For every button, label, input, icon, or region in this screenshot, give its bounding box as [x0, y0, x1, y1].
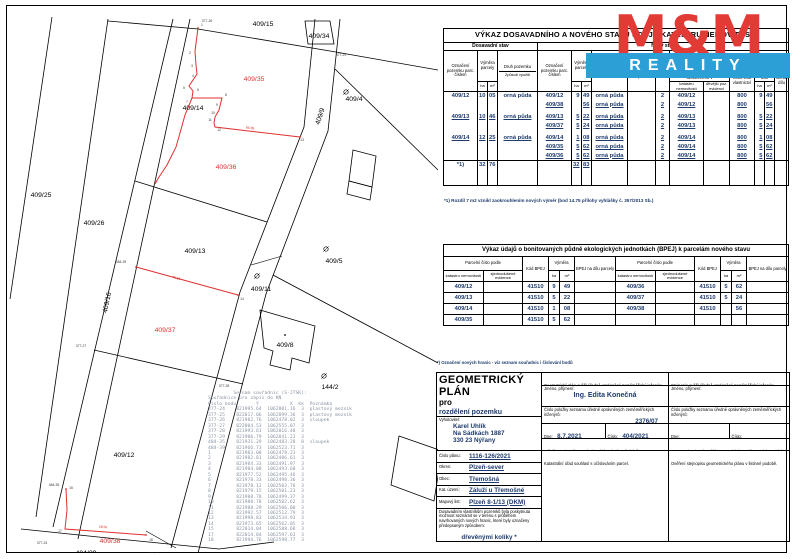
table1-footnote: *1) Rozdíl 7 m2 vznikl zaokrouhlením nov… — [444, 198, 653, 203]
parcel-label: 409/12 — [114, 452, 135, 459]
parcel-label: 409/38 — [100, 538, 121, 545]
parcel-label: 409/25 — [31, 192, 52, 199]
gp-map-sheet: Mapový list:Plzeň 8-1/13 (DKM) — [437, 497, 541, 509]
survey-point — [197, 27, 199, 29]
boundary-line — [335, 69, 438, 170]
point-label: 484-39 — [116, 260, 127, 264]
building-outline — [349, 150, 376, 187]
gp-copy-date-number: Dne: Číslo: — [669, 424, 789, 439]
gp-note: *) Označení nových hranic - viz seznam s… — [437, 360, 573, 365]
gp-district: Okres:Plzeň-sever — [437, 463, 541, 475]
point-label: 11 — [208, 118, 212, 122]
point-label: 8 — [225, 93, 227, 97]
gp-author-cell: Vyhotovitel: Karel Uhlík Na Sádkách 1887… — [437, 417, 541, 451]
parcel-label: 409/4 — [345, 96, 362, 103]
building-outline — [391, 436, 438, 501]
geometric-plan-document: { "map": { "parcel_labels": [ {"t":"409/… — [0, 0, 793, 559]
point-label: 14 — [240, 297, 244, 301]
boundary-line — [10, 17, 52, 299]
table-row: 409/1341510522409/3741510524 — [444, 293, 789, 304]
parcel-label: 409/14 — [183, 105, 204, 112]
gp-right-column: Stejnopis ověřil úředně oprávněný zeměmě… — [669, 373, 789, 541]
col-parcel-new: Označení pozemku parc. číslem — [538, 51, 572, 92]
point-label: 4 — [192, 74, 194, 78]
table1-body: 409/121005orná půda409/12949orná půda240… — [444, 92, 789, 186]
building-outline — [347, 181, 372, 200]
gp-notice-cell: Dosavadním vlastníkům pozemků byla posky… — [437, 509, 541, 542]
gp-middle-column: Geometrický plán ověřil úředně oprávněný… — [542, 373, 669, 541]
boundary-line — [108, 21, 438, 70]
parcel-label: 409/37 — [155, 327, 176, 334]
gp-title: GEOMETRICKÝ PLÁN — [439, 374, 539, 398]
point-label: 377-24 — [37, 541, 48, 545]
parcel-label: 409/11 — [251, 286, 272, 293]
survey-point — [145, 534, 147, 536]
parcel-label: 409/35 — [244, 76, 265, 83]
col-parcel-old: Označení pozemku parc. číslem — [444, 51, 478, 92]
point-label: 377-29 — [336, 53, 347, 57]
old-state-header: Dosavadní stav — [444, 43, 538, 51]
gp-copy-note: Tento stejnopis odpovídá geometrickému p… — [669, 439, 789, 451]
survey-point — [237, 294, 239, 296]
building-409-8-outline — [260, 310, 315, 370]
mm-reality-logo: M&M REALITY — [586, 12, 790, 78]
table-row: 409/131046orná půda409/13522orná půda240… — [444, 113, 789, 122]
logo-reality-band: REALITY — [586, 53, 790, 78]
parcel-label: 409/16 — [102, 292, 113, 314]
table-row: 409/3541510562 — [444, 315, 789, 326]
survey-point — [135, 266, 137, 268]
gp-copy-header: Stejnopis ověřil úředně oprávněný zeměmě… — [669, 373, 789, 386]
table-row: 409/121005orná půda409/12949orná půda240… — [444, 92, 789, 101]
col-area-old: Výměra parcely — [478, 51, 498, 82]
col-landtype-old: Druh pozemku Způsob využití — [498, 51, 538, 92]
gp-title-cell: GEOMETRICKÝ PLÁN pro rozdělení pozemku — [437, 373, 541, 417]
point-label: 13 — [300, 138, 304, 142]
table-row: 409/3856orná půda2409/1280056 — [444, 101, 789, 110]
table-row: 409/35562orná půda2409/14800562 — [444, 143, 789, 152]
table-row: 409/37524orná půda2409/13800524 — [444, 122, 789, 131]
point-label: 17 — [58, 529, 62, 533]
gp-cadastral-area: Kat. území:Záluží u Třemošné — [437, 486, 541, 498]
geometricky-plan-table: GEOMETRICKÝ PLÁN pro rozdělení pozemku V… — [436, 372, 790, 542]
boundary-line — [94, 350, 243, 384]
point-label: 5 — [183, 86, 185, 90]
gp-copy-name: Jméno, příjmení: — [669, 386, 789, 407]
table-row: 409/1441510108409/384151056 — [444, 304, 789, 315]
point-label: 18 — [149, 538, 153, 542]
gp-verif-date-number: Dne: 8.7.2021 Číslo: 404/2021 — [542, 424, 668, 439]
table-row: 409/1241510949409/3641510562 — [444, 282, 789, 293]
gp-purpose: rozdělení pozemku — [439, 409, 539, 416]
table-row — [444, 170, 789, 186]
coordinate-list: Seznam souřadnic (S-JTSK): Souřadnice pr… — [208, 391, 352, 544]
dimension-label: 75.16 — [172, 275, 181, 281]
point-label: 2 — [189, 51, 191, 55]
gp-copy-listno: Číslo položky seznamu úředně oprávněných… — [669, 407, 789, 424]
new-boundary-red — [136, 267, 238, 295]
table-row: 409/36562orná půda2409/14800562 — [444, 152, 789, 161]
gp-municipality: Obec:Třemošná — [437, 474, 541, 486]
point-label: 377-26 — [202, 19, 213, 23]
bpej-table: Výkaz údajů o bonitovaných půdně ekologi… — [443, 244, 789, 326]
survey-point — [65, 488, 67, 490]
parcel-label: 404/29 — [76, 550, 97, 553]
point-label: 377-25 — [149, 552, 160, 553]
point-label: 6 — [197, 88, 199, 92]
parcel-label: 409/8 — [276, 342, 293, 349]
boundary-line — [36, 19, 108, 517]
boundary-line — [273, 275, 438, 363]
table2-body: 409/1241510949409/3641510562409/13415105… — [444, 282, 789, 326]
parcel-label: 409/15 — [253, 21, 274, 28]
parcel-label: 409/9 — [315, 107, 327, 126]
table-row: 409/141225orná půda409/14108orná půda240… — [444, 134, 789, 143]
dimension-label: 80.35 — [246, 126, 255, 131]
gp-copy-verification: Ověření stejnopisu geometrického plánu v… — [669, 451, 789, 541]
gp-verif-header: Geometrický plán ověřil úředně oprávněný… — [542, 373, 668, 386]
gp-left-column: GEOMETRICKÝ PLÁN pro rozdělení pozemku V… — [437, 373, 542, 541]
parcel-label: 144/2 — [321, 384, 338, 391]
boundary-line — [135, 181, 267, 222]
gp-ku-approval: Katastrální úřad souhlasí s očíslováním … — [542, 451, 668, 541]
point-label: 377-28 — [219, 384, 230, 388]
gp-plan-number: Číslo plánu:1116-126/2021 — [437, 451, 541, 463]
gp-compliance: Náležitostmi a přesností odpovídá právní… — [542, 439, 668, 451]
point-label: 10 — [211, 111, 215, 115]
point-label: 9 — [216, 103, 218, 107]
gp-verif-listno: Číslo položky seznamu úředně oprávněných… — [542, 407, 668, 424]
point-label: 15 — [69, 486, 73, 490]
point-label: 7 — [186, 100, 188, 104]
parcel-label: 409/26 — [84, 220, 105, 227]
table-row: *1)32763283 — [444, 161, 789, 170]
table2-title: Výkaz údajů o bonitovaných půdně ekologi… — [444, 245, 789, 257]
parcel-label: 409/36 — [216, 164, 237, 171]
point-label: 484-35 — [49, 483, 60, 487]
parcel-label: 409/13 — [185, 248, 206, 255]
dimension-label: 29.50 — [99, 525, 108, 529]
building-mark — [284, 334, 286, 336]
point-label: 377-27 — [76, 344, 87, 348]
parcel-label: 409/34 — [309, 33, 330, 40]
point-label: 1 — [201, 23, 203, 27]
point-label: 3 — [191, 64, 193, 68]
gp-verif-name: Jméno, příjmení: Ing. Edita Konečná — [542, 386, 668, 407]
parcel-label: 409/5 — [325, 258, 342, 265]
point-label: 12 — [217, 128, 221, 132]
